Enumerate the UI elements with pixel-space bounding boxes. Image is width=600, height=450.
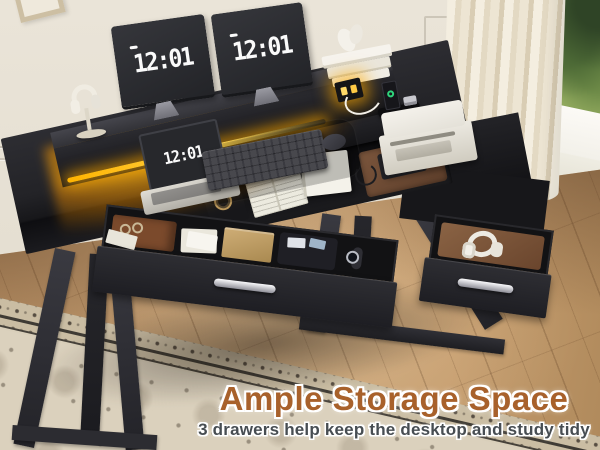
headphones-earcup xyxy=(90,94,101,109)
headphone-stand xyxy=(62,81,115,145)
headphones-earcup xyxy=(461,241,476,259)
headphones-earcup xyxy=(490,241,504,258)
monitor-right: 12:01 xyxy=(211,2,314,98)
caption-title: Ample Storage Space xyxy=(194,382,594,417)
clock-tick xyxy=(130,45,138,49)
storage-box xyxy=(221,227,274,263)
phone xyxy=(381,80,401,110)
laptop-clock: 12:01 xyxy=(162,141,205,168)
monitor-left-clock: 12:01 xyxy=(132,42,195,78)
wallet xyxy=(277,232,338,271)
drawer-handle xyxy=(457,278,514,294)
stand-base xyxy=(76,127,107,140)
monitor-right-clock: 12:01 xyxy=(231,30,294,66)
glasses-lens xyxy=(131,221,144,234)
marketing-caption: Ample Storage Space 3 drawers help keep … xyxy=(194,382,594,440)
stand-stem xyxy=(84,108,91,130)
right-drawer-open xyxy=(418,214,558,323)
product-photo-desk-scene: 12:01 12:01 12:01 xyxy=(0,0,600,450)
sculpture xyxy=(348,23,364,45)
wallet-card xyxy=(309,238,327,250)
charge-indicator-ring xyxy=(387,90,395,98)
clock-tick xyxy=(230,33,238,37)
wallet-card xyxy=(287,237,305,248)
caption-subtitle: 3 drawers help keep the desktop and stud… xyxy=(194,420,594,440)
drawer-handle xyxy=(214,278,277,293)
monitor-left: 12:01 xyxy=(111,14,216,110)
